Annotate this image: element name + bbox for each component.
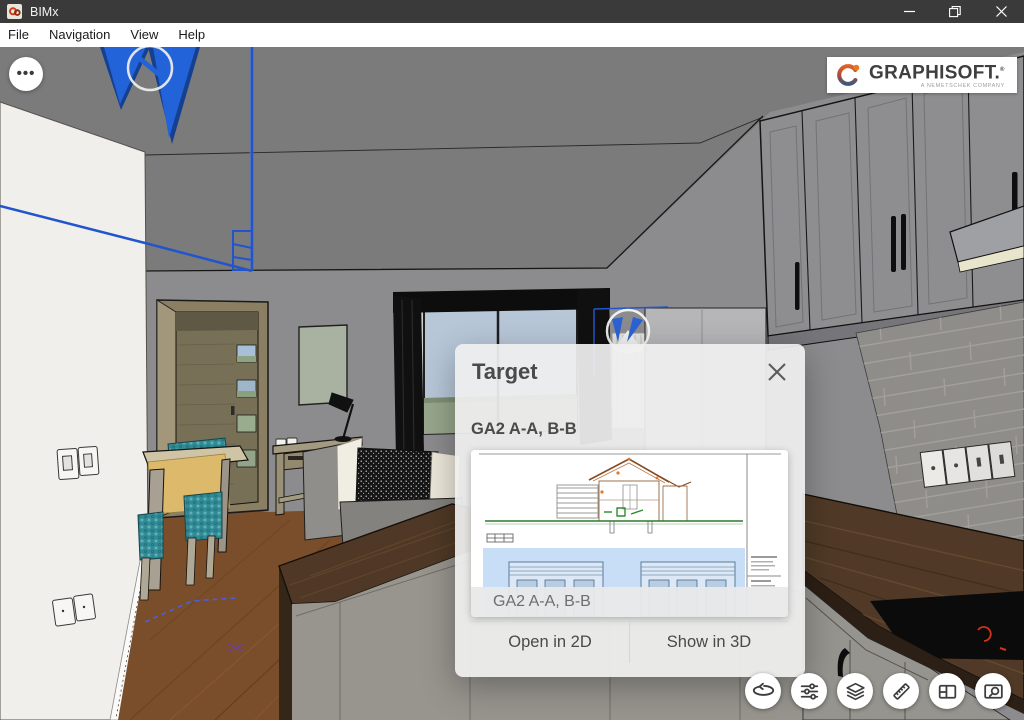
close-icon xyxy=(766,361,788,383)
dialog-close-button[interactable] xyxy=(764,359,790,385)
layers-button[interactable] xyxy=(837,673,873,709)
view-toolbar xyxy=(745,673,1011,709)
graphisoft-logo-icon xyxy=(835,61,863,89)
orbit-button[interactable] xyxy=(745,673,781,709)
minimize-button[interactable] xyxy=(886,0,932,23)
menu-bar: File Navigation View Help xyxy=(0,23,1024,47)
wall-mirror xyxy=(299,325,347,405)
settings-sliders-button[interactable] xyxy=(791,673,827,709)
dining-chair xyxy=(184,492,222,541)
menu-help[interactable]: Help xyxy=(168,23,215,47)
show-in-3d-button[interactable]: Show in 3D xyxy=(629,622,788,663)
restore-button[interactable] xyxy=(932,0,978,23)
brand-reg-mark: ® xyxy=(1000,67,1005,73)
door-handle xyxy=(231,406,235,415)
window-title: BIMx xyxy=(30,5,58,19)
menu-navigation[interactable]: Navigation xyxy=(39,23,120,47)
ruler-icon xyxy=(889,679,914,704)
layout-thumbnail[interactable]: GA2 A-A, B-B xyxy=(471,450,788,617)
measure-button[interactable] xyxy=(883,673,919,709)
close-icon xyxy=(996,6,1007,17)
more-options-button[interactable]: ••• xyxy=(9,57,43,91)
graphisoft-badge: GRAPHISOFT.® A NEMETSCHEK COMPANY xyxy=(827,57,1017,93)
left-wall xyxy=(0,102,152,720)
preview-search-button[interactable] xyxy=(975,673,1011,709)
menu-view[interactable]: View xyxy=(120,23,168,47)
open-in-2d-button[interactable]: Open in 2D xyxy=(471,622,629,663)
dialog-item-title: GA2 A-A, B-B xyxy=(471,420,577,439)
dining-chair xyxy=(138,512,163,560)
filter-sliders-icon xyxy=(797,679,822,704)
minimize-icon xyxy=(904,6,915,17)
close-button[interactable] xyxy=(978,0,1024,23)
preview-search-icon xyxy=(981,679,1006,704)
brand-name: GRAPHISOFT. xyxy=(869,62,1000,83)
brand-tagline: A NEMETSCHEK COMPANY xyxy=(869,83,1005,89)
orbit-icon xyxy=(751,679,776,704)
left-curtain xyxy=(393,296,424,460)
layouts-button[interactable] xyxy=(929,673,965,709)
title-bar: BIMx xyxy=(0,0,1024,23)
layout-sheet-icon xyxy=(935,679,960,704)
dialog-title: Target xyxy=(472,359,538,385)
menu-file[interactable]: File xyxy=(0,23,39,47)
target-dialog: Target GA2 A-A, B-B xyxy=(455,344,805,677)
restore-icon xyxy=(949,6,961,18)
layers-icon xyxy=(843,679,868,704)
dialog-actions: Open in 2D Show in 3D xyxy=(471,621,788,663)
thumbnail-caption: GA2 A-A, B-B xyxy=(471,587,788,617)
bimx-app-icon xyxy=(7,4,22,19)
